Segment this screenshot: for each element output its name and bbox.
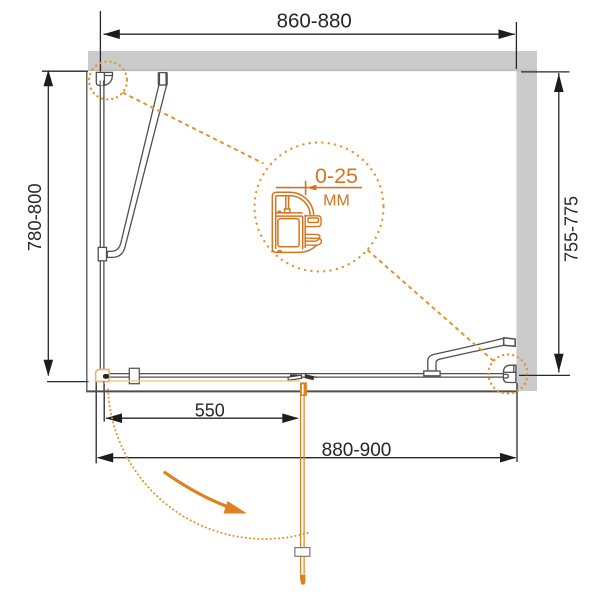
svg-text:880-900: 880-900 (322, 440, 392, 461)
svg-text:MM: MM (323, 193, 350, 210)
svg-text:755-775: 755-775 (561, 196, 581, 262)
svg-text:860-880: 860-880 (277, 10, 352, 33)
svg-text:0-25: 0-25 (315, 164, 358, 188)
svg-text:780-800: 780-800 (24, 183, 45, 251)
svg-text:550: 550 (195, 401, 225, 421)
